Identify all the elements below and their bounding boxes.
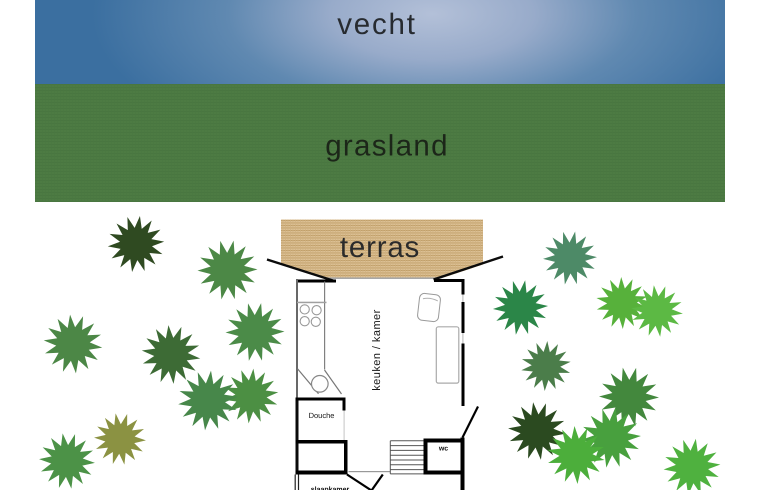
svg-text:slaapkamer: slaapkamer	[311, 485, 350, 490]
svg-text:vecht: vecht	[337, 8, 417, 41]
svg-text:wc: wc	[438, 446, 448, 453]
svg-text:keuken / kamer: keuken / kamer	[371, 309, 383, 391]
svg-text:terras: terras	[340, 231, 420, 264]
svg-text:grasland: grasland	[325, 130, 449, 163]
svg-text:Douche: Douche	[309, 411, 335, 420]
